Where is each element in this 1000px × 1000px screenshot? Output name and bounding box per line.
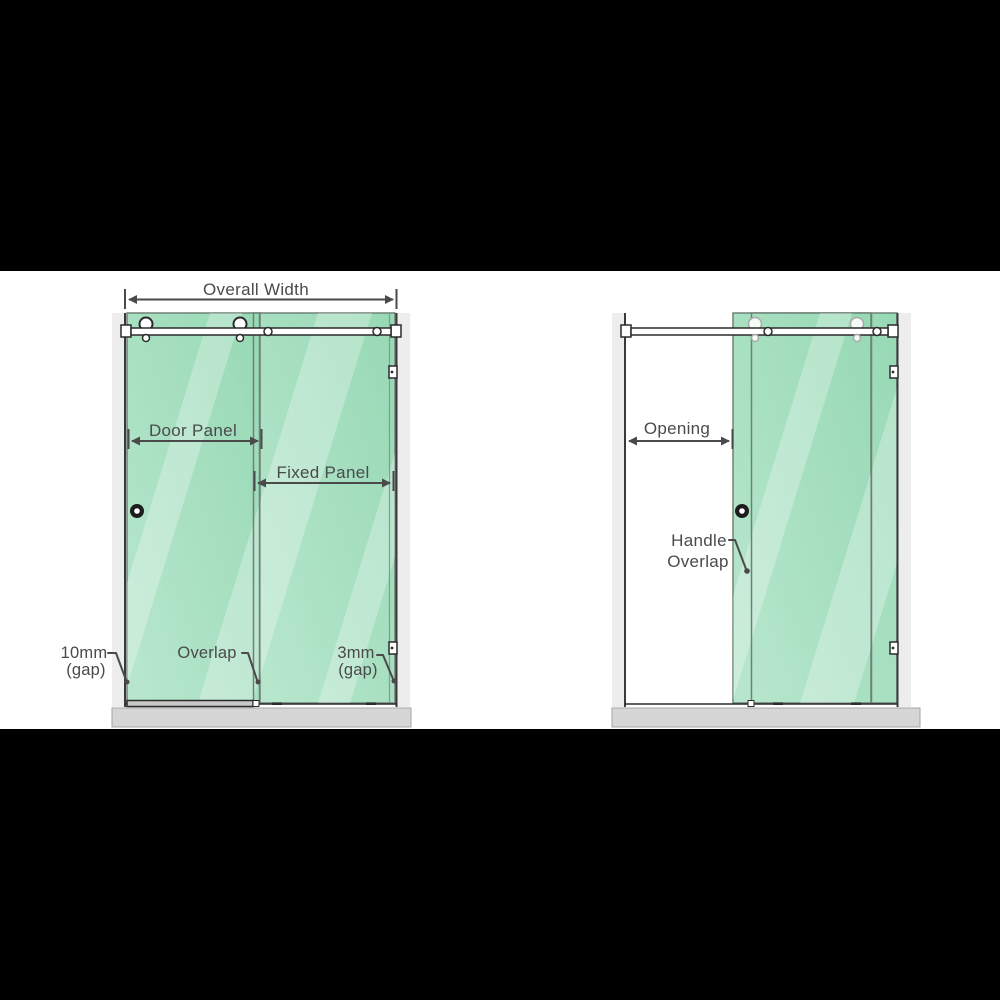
- left-diagram-closed-position: Overall Width Door Panel Fixed Panel 10m…: [61, 280, 470, 727]
- handle-overlap-label-line2: Overlap: [667, 552, 729, 571]
- fixed-panel-fitting: [264, 328, 272, 336]
- door-handle-icon: [735, 504, 749, 518]
- right-wall-shade: [898, 313, 911, 707]
- screenshot-canvas: Overall Width Door Panel Fixed Panel 10m…: [0, 0, 1000, 1000]
- roller-guide: [143, 335, 150, 342]
- left-wall-shade: [612, 313, 625, 707]
- floor-slab: [112, 708, 411, 727]
- rail-bracket: [121, 325, 131, 337]
- door-panel-label: Door Panel: [149, 421, 237, 440]
- handle-overlap-label-line1: Handle: [671, 531, 727, 550]
- roller-guide: [237, 335, 244, 342]
- gap-10mm-label-line2: (gap): [66, 661, 106, 679]
- bottom-guide: [253, 701, 259, 707]
- opening-label: Opening: [644, 419, 710, 438]
- overall-width-label: Overall Width: [203, 280, 309, 299]
- rail-bar: [631, 328, 888, 335]
- door-handle-icon: [130, 504, 144, 518]
- overlap-label: Overlap: [177, 644, 236, 662]
- rail-bracket: [888, 325, 898, 337]
- shower-door-diagram: Overall Width Door Panel Fixed Panel 10m…: [0, 0, 1000, 1000]
- rail-bracket: [621, 325, 631, 337]
- rail-bracket: [391, 325, 401, 337]
- ghost-roller-guide: [854, 335, 861, 342]
- right-diagram-open-position: Opening Handle Overlap: [612, 313, 974, 727]
- door-bottom-bar: [127, 701, 253, 707]
- bottom-guide: [748, 701, 754, 707]
- overall-width-dimension: Overall Width: [125, 280, 397, 309]
- rail-bar: [131, 328, 391, 335]
- left-wall-shade: [112, 313, 125, 707]
- gap-3mm-label-line2: (gap): [338, 661, 378, 679]
- floor-slab: [612, 708, 920, 727]
- right-wall-shade: [397, 313, 410, 707]
- gap-3mm-label-line1: 3mm: [337, 644, 374, 662]
- fixed-panel-fitting: [373, 328, 381, 336]
- gap-10mm-label-line1: 10mm: [61, 644, 108, 662]
- ghost-roller-guide: [752, 335, 759, 342]
- fixed-panel-fitting: [764, 328, 772, 336]
- fixed-panel-fitting: [873, 328, 881, 336]
- opening-dimension: Opening: [629, 419, 733, 449]
- fixed-panel-label: Fixed Panel: [276, 463, 369, 482]
